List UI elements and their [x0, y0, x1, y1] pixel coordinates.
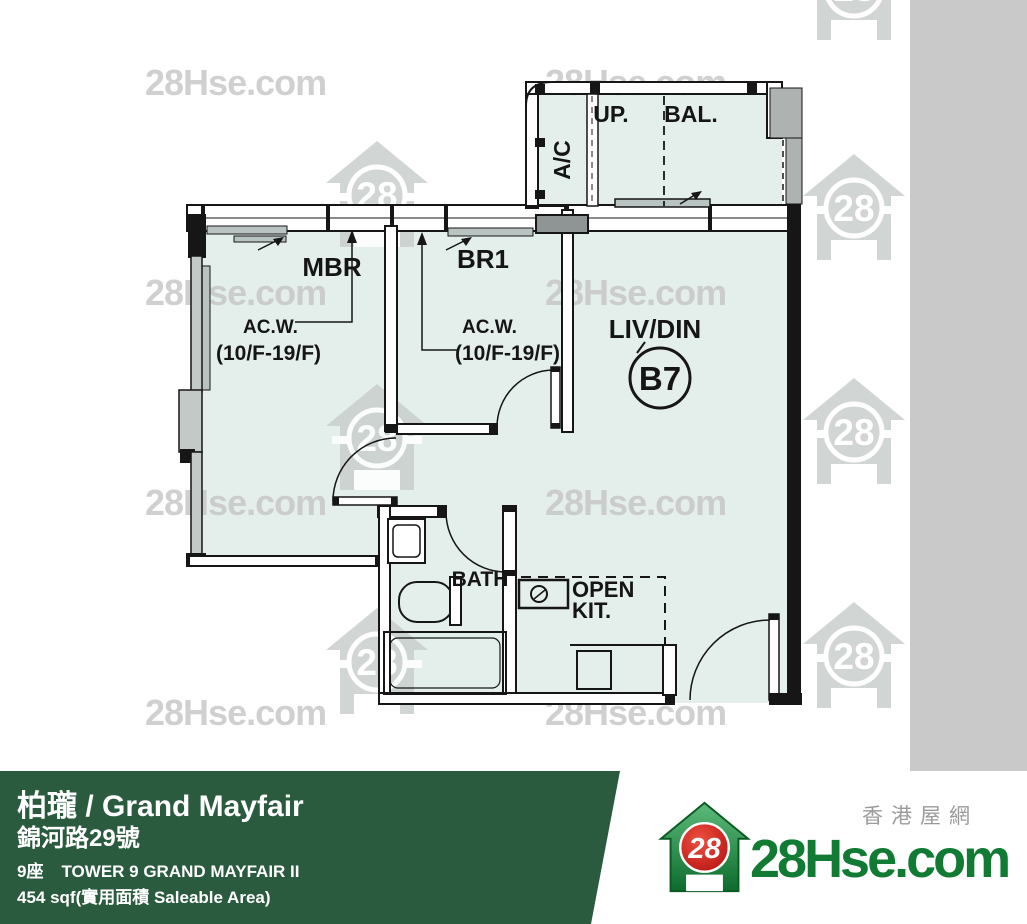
- room-label-bal: BAL.: [664, 101, 718, 127]
- watermark-text: 28Hse.com: [145, 482, 326, 523]
- room-label-livdin: LIV/DIN: [609, 314, 701, 344]
- watermark-text: 28Hse.com: [545, 482, 726, 523]
- room-label-br1: BR1: [457, 244, 509, 274]
- room-label-up: UP.: [593, 101, 628, 127]
- ac-platform: [536, 215, 588, 233]
- room-label-bath: BATH: [452, 568, 509, 591]
- cooktop: [519, 580, 568, 608]
- watermark-text: 28Hse.com: [145, 62, 326, 103]
- logo-tagline: 香港屋網: [862, 800, 978, 830]
- estate-address: 錦河路29號: [17, 818, 140, 853]
- logo-badge: 28: [687, 833, 721, 865]
- room-label-ac: A/C: [549, 140, 575, 180]
- watermark-text: 28Hse.com: [145, 272, 326, 313]
- acw-floors-br1: (10/F-19/F): [455, 342, 560, 365]
- logo-site-name: 28Hse.com: [750, 828, 1008, 890]
- room-label-mbr: MBR: [302, 252, 361, 282]
- acw-floors-mbr: (10/F-19/F): [216, 342, 321, 365]
- tower-info: 9座TOWER 9 GRAND MAYFAIR II: [17, 857, 300, 882]
- room-fills: [190, 82, 798, 703]
- unit-label: B7: [639, 360, 681, 397]
- room-label-openkit-2: KIT.: [572, 598, 611, 623]
- footer-bar: 柏瓏 / Grand Mayfair 錦河路29號 9座TOWER 9 GRAN…: [0, 771, 1027, 924]
- acw-label-br1: AC.W.: [462, 317, 517, 338]
- tower-number: 9座: [17, 862, 43, 881]
- watermark-text: 28Hse.com: [145, 692, 326, 733]
- floorplan-svg: 28 28Hse.com 28Hse.com 28Hse.com 28Hse.c…: [0, 0, 1027, 778]
- logo-house-icon: 28: [656, 798, 753, 895]
- floorplan: 28 28Hse.com 28Hse.com 28Hse.com 28Hse.c…: [0, 0, 1027, 778]
- tower-name: TOWER 9 GRAND MAYFAIR II: [61, 862, 299, 881]
- acw-label-mbr: AC.W.: [243, 317, 298, 338]
- site-logo: 28 28Hse.com 香港屋網: [656, 796, 1016, 916]
- area-info: 454 sqf(實用面積 Saleable Area): [17, 883, 271, 908]
